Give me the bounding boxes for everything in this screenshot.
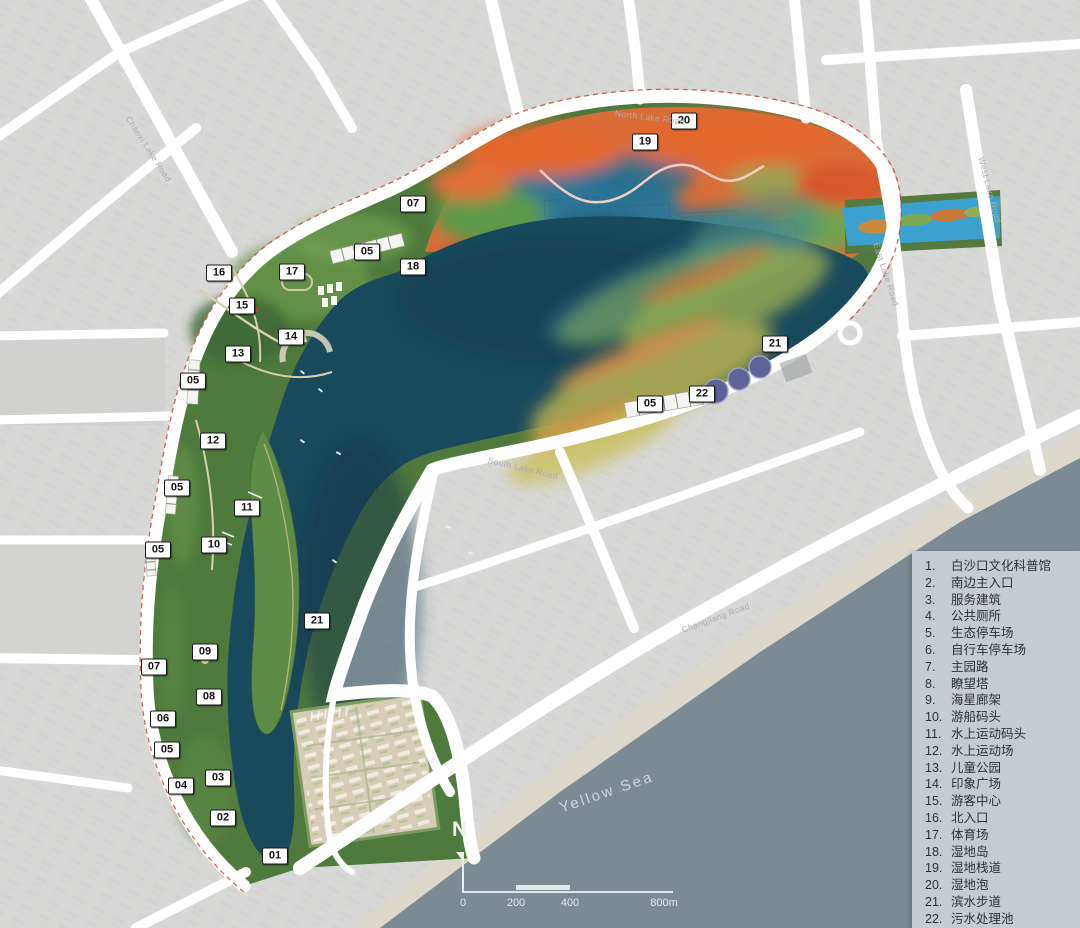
scale-bar-segment: [516, 885, 570, 890]
legend-item-number: 13.: [925, 760, 951, 777]
legend-item-label: 游客中心: [951, 793, 1076, 810]
legend-list: 1.白沙口文化科普馆2.南边主入口3.服务建筑4.公共厕所5.生态停车场6.自行…: [925, 558, 1076, 928]
north-arrow-label: N: [452, 818, 467, 842]
legend-item: 21.滨水步道: [925, 894, 1076, 911]
legend-item: 8.瞭望塔: [925, 676, 1076, 693]
legend-item-number: 5.: [925, 625, 951, 642]
legend-item-number: 10.: [925, 709, 951, 726]
map-marker-05: 05: [145, 542, 171, 559]
map-marker-12: 12: [200, 433, 226, 450]
legend-item: 15.游客中心: [925, 793, 1076, 810]
map-marker-15: 15: [229, 298, 255, 315]
map-marker-17: 17: [279, 264, 305, 281]
legend-item-number: 20.: [925, 877, 951, 894]
legend-item: 13.儿童公园: [925, 760, 1076, 777]
legend-item-label: 湿地岛: [951, 844, 1076, 861]
legend-item-number: 16.: [925, 810, 951, 827]
legend-item: 16.北入口: [925, 810, 1076, 827]
map-marker-22: 22: [689, 386, 715, 403]
legend-item-number: 18.: [925, 844, 951, 861]
legend-item-number: 2.: [925, 575, 951, 592]
map-marker-21: 21: [762, 336, 788, 353]
legend-item: 2.南边主入口: [925, 575, 1076, 592]
legend-item-number: 4.: [925, 608, 951, 625]
legend-item-label: 自行车停车场: [951, 642, 1076, 659]
map-marker-01: 01: [262, 848, 288, 865]
legend-item-number: 14.: [925, 776, 951, 793]
legend-item: 14.印象广场: [925, 776, 1076, 793]
map-marker-16: 16: [206, 265, 232, 282]
scale-tick-800m: 800m: [650, 897, 678, 909]
map-marker-19: 19: [632, 134, 658, 151]
legend-item: 1.白沙口文化科普馆: [925, 558, 1076, 575]
legend-item-label: 水上运动码头: [951, 726, 1076, 743]
legend-item-label: 白沙口文化科普馆: [951, 558, 1076, 575]
legend-item-number: 11.: [925, 726, 951, 743]
map-marker-05: 05: [354, 244, 380, 261]
legend-item: 18.湿地岛: [925, 844, 1076, 861]
legend-item-label: 服务建筑: [951, 592, 1076, 609]
map-marker-05: 05: [154, 742, 180, 759]
legend-item-label: 公共厕所: [951, 608, 1076, 625]
scale-tick-400: 400: [561, 897, 579, 909]
legend-item: 12.水上运动场: [925, 743, 1076, 760]
map-marker-18: 18: [400, 259, 426, 276]
legend-item-number: 21.: [925, 894, 951, 911]
legend-item: 4.公共厕所: [925, 608, 1076, 625]
map-marker-09: 09: [192, 644, 218, 661]
legend-item: 5.生态停车场: [925, 625, 1076, 642]
map-marker-03: 03: [205, 770, 231, 787]
masterplan-map: 2019070518161715141305120511100521090708…: [0, 0, 1080, 928]
legend-item-label: 北入口: [951, 810, 1076, 827]
map-marker-10: 10: [201, 537, 227, 554]
map-marker-13: 13: [225, 346, 251, 363]
map-marker-08: 08: [196, 689, 222, 706]
legend-item-label: 游船码头: [951, 709, 1076, 726]
map-marker-06: 06: [150, 711, 176, 728]
legend-item: 6.自行车停车场: [925, 642, 1076, 659]
legend-item-label: 湿地栈道: [951, 860, 1076, 877]
legend-item: 17.体育场: [925, 827, 1076, 844]
map-marker-07: 07: [141, 659, 167, 676]
map-marker-07: 07: [400, 196, 426, 213]
legend-item-number: 6.: [925, 642, 951, 659]
legend-item: 3.服务建筑: [925, 592, 1076, 609]
legend-item-number: 7.: [925, 659, 951, 676]
map-marker-11: 11: [234, 500, 260, 517]
legend-item-label: 儿童公园: [951, 760, 1076, 777]
legend-item-label: 瞭望塔: [951, 676, 1076, 693]
map-marker-05: 05: [637, 396, 663, 413]
legend-item-number: 15.: [925, 793, 951, 810]
scale-bar: [463, 891, 673, 893]
map-marker-21: 21: [304, 613, 330, 630]
legend-item: 7.主园路: [925, 659, 1076, 676]
legend-item-label: 印象广场: [951, 776, 1076, 793]
legend-item-label: 南边主入口: [951, 575, 1076, 592]
legend-item: 11.水上运动码头: [925, 726, 1076, 743]
map-marker-02: 02: [210, 810, 236, 827]
legend-item-number: 12.: [925, 743, 951, 760]
legend-item-label: 海星廊架: [951, 692, 1076, 709]
map-marker-14: 14: [278, 329, 304, 346]
legend-item-label: 生态停车场: [951, 625, 1076, 642]
legend-item-number: 9.: [925, 692, 951, 709]
legend-item-number: 17.: [925, 827, 951, 844]
map-marker-04: 04: [168, 778, 194, 795]
legend-panel: 1.白沙口文化科普馆2.南边主入口3.服务建筑4.公共厕所5.生态停车场6.自行…: [912, 551, 1080, 928]
legend-item: 9.海星廊架: [925, 692, 1076, 709]
legend-item-label: 主园路: [951, 659, 1076, 676]
legend-item-number: 3.: [925, 592, 951, 609]
legend-item-label: 滨水步道: [951, 894, 1076, 911]
scale-tick-0: 0: [460, 897, 466, 909]
legend-item: 22.污水处理池: [925, 911, 1076, 928]
legend-item: 10.游船码头: [925, 709, 1076, 726]
legend-item-label: 体育场: [951, 827, 1076, 844]
map-marker-05: 05: [164, 480, 190, 497]
legend-item-number: 1.: [925, 558, 951, 575]
north-arrow-staff: [462, 852, 464, 893]
legend-item-label: 污水处理池: [951, 911, 1076, 928]
legend-item-number: 8.: [925, 676, 951, 693]
legend-item-label: 湿地泡: [951, 877, 1076, 894]
legend-item-label: 水上运动场: [951, 743, 1076, 760]
legend-item: 19.湿地栈道: [925, 860, 1076, 877]
map-marker-05: 05: [180, 373, 206, 390]
legend-item-number: 19.: [925, 860, 951, 877]
legend-item: 20.湿地泡: [925, 877, 1076, 894]
legend-item-number: 22.: [925, 911, 951, 928]
scale-tick-200: 200: [507, 897, 525, 909]
